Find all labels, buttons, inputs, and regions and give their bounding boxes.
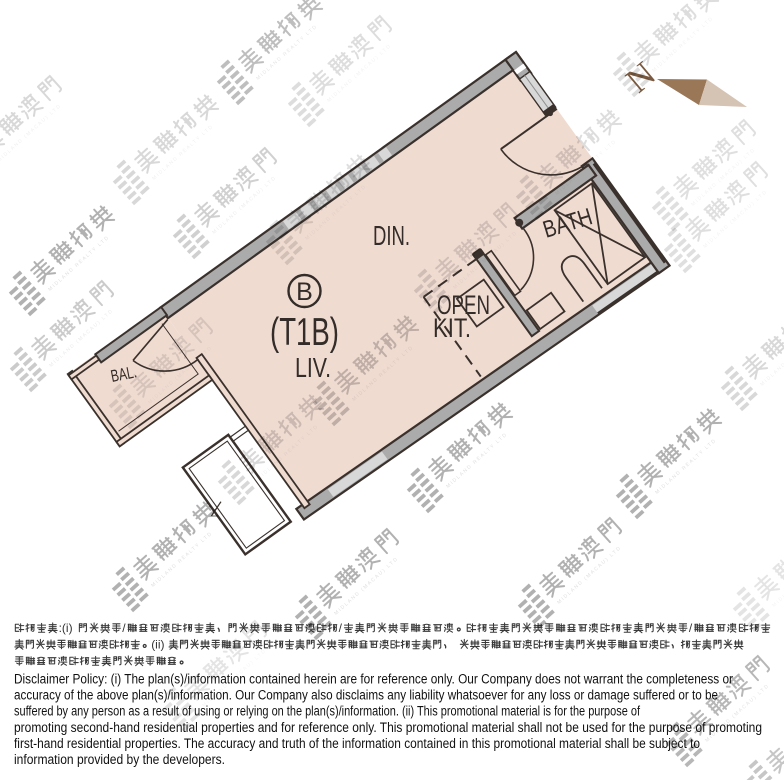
svg-text:/: / [689,621,693,635]
svg-text::(i): :(i) [59,621,73,635]
svg-text:/: / [339,621,343,635]
svg-text:DIN.: DIN. [373,220,410,251]
svg-text:KIT.: KIT. [433,313,471,343]
svg-text:first-hand residential propert: first-hand residential properties. The a… [14,736,700,751]
svg-text:(ii): (ii) [151,638,164,652]
svg-text:LIV.: LIV. [295,352,331,383]
svg-text:MIDLAND REALTY LTD: MIDLAND REALTY LTD [771,550,784,608]
svg-text:promoting second-hand resident: promoting second-hand residential proper… [14,720,762,735]
svg-text:information provided by the de: information provided by the developers. [14,752,225,767]
svg-text:/: / [122,621,126,635]
svg-text:suffered by any person as a re: suffered by any person as a result of us… [14,704,640,719]
svg-text:(T1B): (T1B) [270,311,339,354]
svg-text:Disclaimer Policy: (i) The pla: Disclaimer Policy: (i) The plan(s)/infor… [14,672,733,687]
svg-text:accuracy of the above plan(s)/: accuracy of the above plan(s)/informatio… [14,688,718,703]
svg-text:B: B [296,278,313,306]
